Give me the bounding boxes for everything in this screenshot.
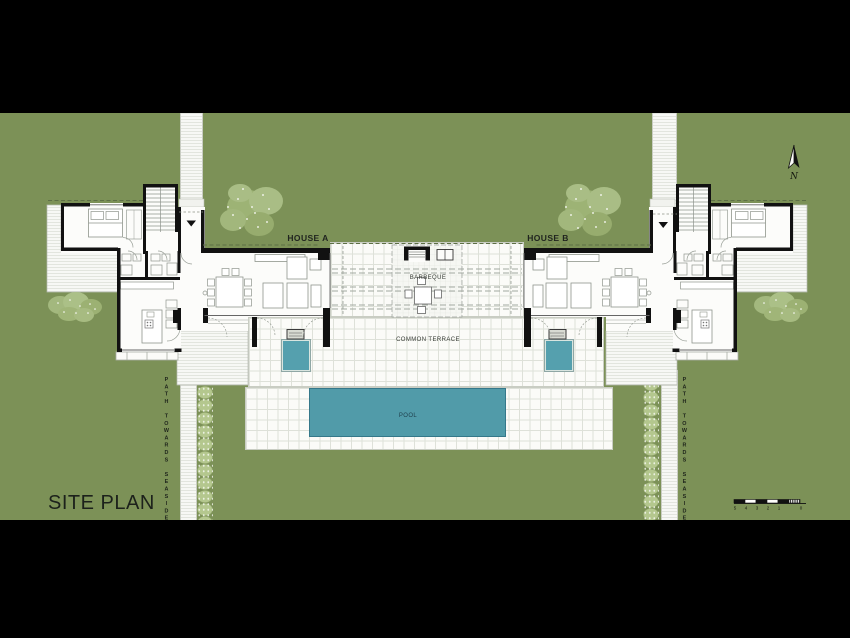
hedge-left — [197, 386, 213, 520]
scale-label-0: 0 — [800, 506, 803, 511]
pool-label: POOL — [388, 413, 428, 419]
letterbox-bottom — [0, 520, 850, 638]
path-seaside-left-label: PATH TOWARDS SEASIDE — [163, 377, 168, 517]
north-arrow-icon — [789, 145, 795, 168]
house-a-label: HOUSE A — [278, 234, 338, 243]
barbeque-label: BARBEQUE — [398, 275, 458, 281]
spa-right — [545, 340, 573, 371]
page-title: SITE PLAN — [48, 492, 155, 515]
scale-label-4: 4 — [745, 506, 748, 511]
scale-label-1: 1 — [778, 506, 781, 511]
entry-path-left — [180, 113, 203, 216]
north-label: N — [789, 172, 799, 182]
house-b-label: HOUSE B — [518, 234, 578, 243]
entry-path-right — [652, 113, 677, 226]
scale-label-3: 3 — [756, 506, 759, 511]
north-arrow: N — [783, 143, 805, 185]
scale-label-5: 5 — [734, 506, 737, 511]
scale-label-2: 2 — [767, 506, 770, 511]
seaside-path-right — [661, 370, 678, 520]
scale-bar: 5 4 3 2 1 0 — [733, 494, 811, 514]
site-plan-canvas: HOUSE A HOUSE B BARBEQUE COMMON TERRACE … — [0, 0, 850, 638]
hedge-right — [643, 378, 659, 520]
path-seaside-right-label: PATH TOWARDS SEASIDE — [681, 377, 686, 517]
letterbox-top — [0, 0, 850, 113]
seaside-path-left — [180, 370, 197, 520]
common-terrace-label: COMMON TERRACE — [383, 337, 473, 343]
spa-left — [282, 340, 310, 371]
